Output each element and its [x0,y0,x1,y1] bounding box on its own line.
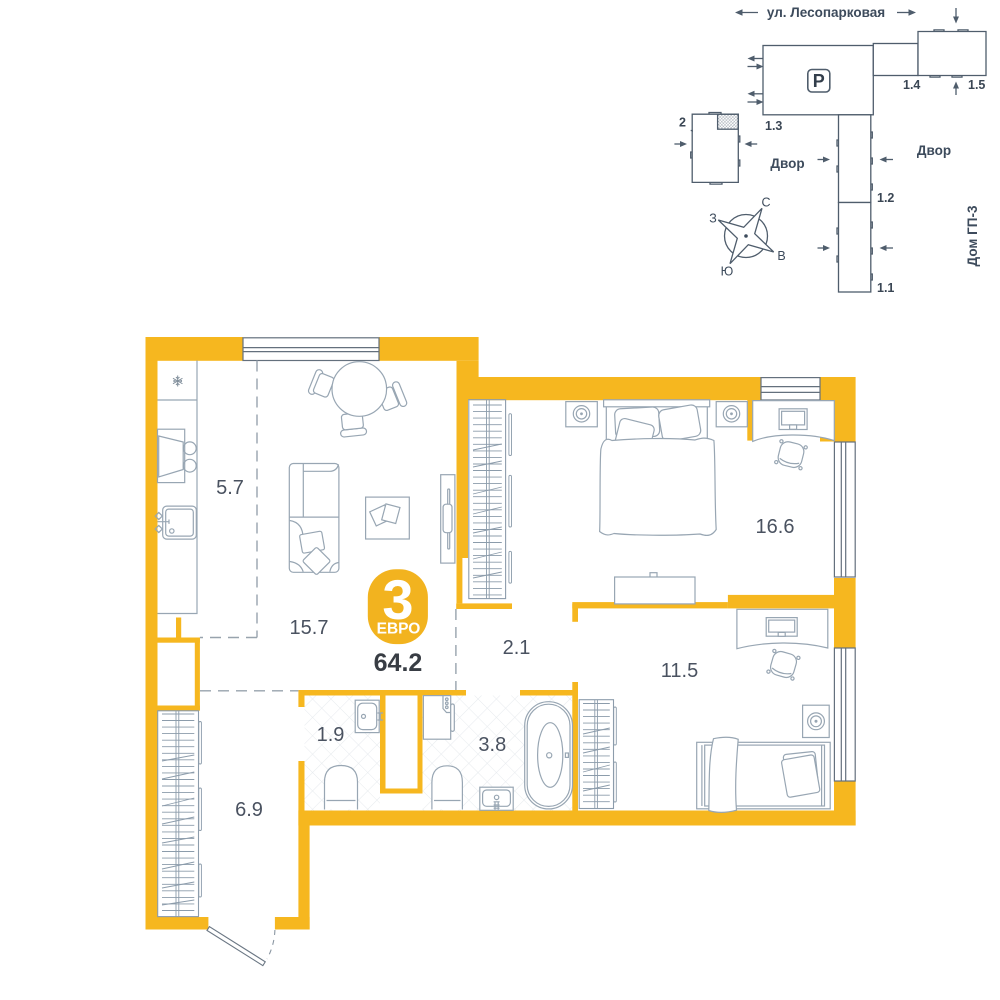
svg-text:1.9: 1.9 [317,724,345,746]
svg-text:2.1: 2.1 [503,637,531,659]
svg-text:Двор: Двор [917,143,951,158]
svg-text:С: С [761,196,770,210]
svg-text:Двор: Двор [770,156,804,171]
svg-text:16.6: 16.6 [756,516,795,538]
svg-text:P: P [813,71,825,91]
svg-text:1.5: 1.5 [968,78,985,92]
svg-text:ЕВРО: ЕВРО [377,621,421,638]
svg-text:1.3: 1.3 [765,119,782,133]
svg-text:64.2: 64.2 [374,649,423,677]
svg-text:6.9: 6.9 [235,799,263,821]
svg-text:Ю: Ю [721,265,734,279]
svg-text:15.7: 15.7 [290,617,329,639]
svg-text:Дом ГП-3: Дом ГП-3 [965,205,980,266]
svg-text:1.1: 1.1 [877,281,894,295]
svg-text:3.8: 3.8 [478,734,506,756]
svg-text:1.2: 1.2 [877,191,894,205]
svg-text:З: З [709,212,717,226]
svg-text:11.5: 11.5 [661,660,698,682]
svg-text:В: В [777,249,785,263]
svg-text:2: 2 [679,116,686,130]
svg-text:1.4: 1.4 [903,78,920,92]
svg-text:ул. Лесопарковая: ул. Лесопарковая [767,5,885,20]
svg-text:5.7: 5.7 [216,477,244,499]
